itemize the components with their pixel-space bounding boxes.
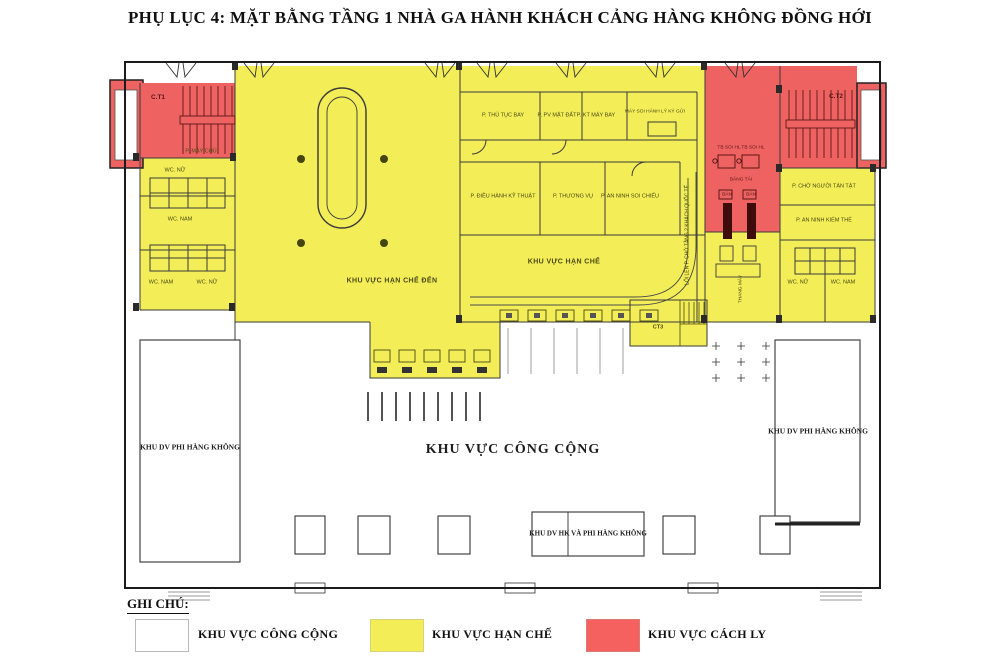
zone-label-mixed-services: KHU DV HK VÀ PHI HÀNG KHÔNG bbox=[529, 531, 647, 538]
room-label-wc-nam-right: WC. NAM bbox=[831, 280, 855, 286]
room-label-wc-nam-upper: WC. NAM bbox=[168, 217, 192, 223]
room-label-server: P. MÁY CHỦ bbox=[185, 149, 216, 155]
zone-label-arrival-hall: KHU VỰC HẠN CHẾ ĐẾN bbox=[347, 278, 438, 285]
zone-label-nonaviation-left: KHU DV PHI HÀNG KHÔNG bbox=[140, 443, 240, 451]
queue-lines-gray bbox=[508, 328, 623, 374]
zone-label-nonaviation-right: KHU DV PHI HÀNG KHÔNG bbox=[768, 427, 868, 435]
room-label-tech-operations: P. ĐIỀU HÀNH KỸ THUẬT bbox=[471, 194, 536, 200]
room-label-wc-nu-lower: WC. NỮ bbox=[197, 280, 218, 286]
legend-swatch-public bbox=[135, 619, 189, 652]
legend-swatch-isolation bbox=[586, 619, 640, 652]
legend-label-isolation: KHU VỰC CÁCH LY bbox=[648, 627, 766, 642]
room-label-baggage-scanner: MÁY SOI HÀNH LÝ KÝ GỬI bbox=[625, 111, 685, 116]
label-desk-left: BÀN bbox=[722, 194, 732, 199]
queue-lines-black bbox=[368, 392, 480, 421]
zone-label-restricted-hall: KHU VỰC HẠN CHẾ bbox=[528, 259, 600, 266]
room-label-aircraft-tech: P. KT MÁY BAY bbox=[577, 113, 615, 119]
legend-label-public: KHU VỰC CÔNG CỘNG bbox=[198, 627, 338, 642]
label-elevator: THANG MÁY bbox=[740, 275, 745, 304]
label-ct1: C.T1 bbox=[151, 95, 165, 102]
zone-label-public-hall: KHU VỰC CÔNG CỘNG bbox=[426, 443, 601, 457]
room-label-wc-nu-upper: WC. NỮ bbox=[165, 168, 186, 174]
room-label-wc-nam-lower: WC. NAM bbox=[149, 280, 173, 286]
room-label-commercial: P. THƯƠNG VỤ bbox=[553, 194, 593, 200]
room-label-wc-nu-right: WC. NỮ bbox=[788, 280, 809, 286]
room-label-disabled-waiting: P. CHỜ NGƯỜI TÀN TẬT bbox=[792, 184, 856, 190]
right-shaft bbox=[861, 90, 881, 160]
label-conveyor: BĂNG TẢI bbox=[730, 179, 752, 184]
legend-heading: GHI CHÚ: bbox=[127, 596, 189, 614]
label-scanner-left: TB SOI HL bbox=[717, 147, 740, 152]
label-scanner-right: TB SOI HL bbox=[741, 147, 764, 152]
legend-swatch-restricted bbox=[370, 619, 424, 652]
room-label-ground-services: P. PV MẶT ĐẤT bbox=[538, 113, 577, 119]
label-ct2: C.T2 bbox=[829, 94, 843, 101]
room-label-body-search: P. AN NINH KIỂM THỂ bbox=[796, 218, 852, 224]
floor-plan-page: PHỤ LỤC 4: MẶT BẰNG TẦNG 1 NHÀ GA HÀNH K… bbox=[0, 0, 1000, 667]
room-label-security-screening: P. AN NINH SOI CHIẾU bbox=[601, 194, 659, 200]
zone-yellow-right bbox=[780, 168, 875, 322]
zone-yellow-ct3 bbox=[630, 300, 707, 346]
label-desk-right: BÀN bbox=[746, 194, 756, 199]
barrier-crosses bbox=[712, 342, 770, 382]
room-label-flight-procedures: P. THỦ TỤC BAY bbox=[482, 113, 524, 119]
legend-label-restricted: KHU VỰC HẠN CHẾ bbox=[432, 627, 552, 642]
zone-red-ct2 bbox=[780, 66, 857, 168]
label-level2-access: LỐI LÊN P. CHỜ TẦNG 2 KHÁCH QUỐC TẾ bbox=[686, 185, 691, 285]
label-ct3: CT3 bbox=[653, 325, 663, 331]
